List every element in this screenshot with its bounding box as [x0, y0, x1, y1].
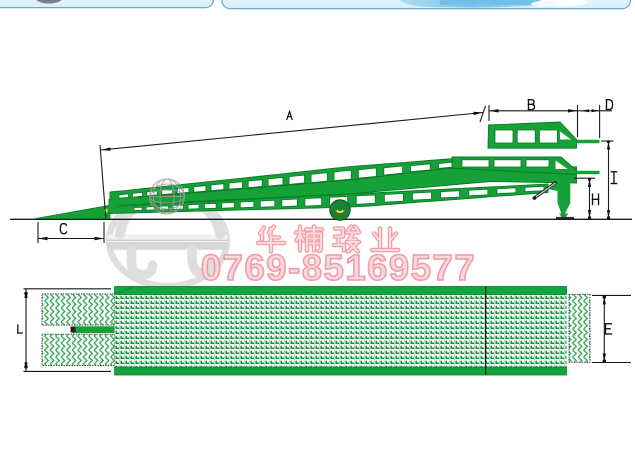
svg-text:0769-85169577: 0769-85169577	[201, 247, 476, 288]
